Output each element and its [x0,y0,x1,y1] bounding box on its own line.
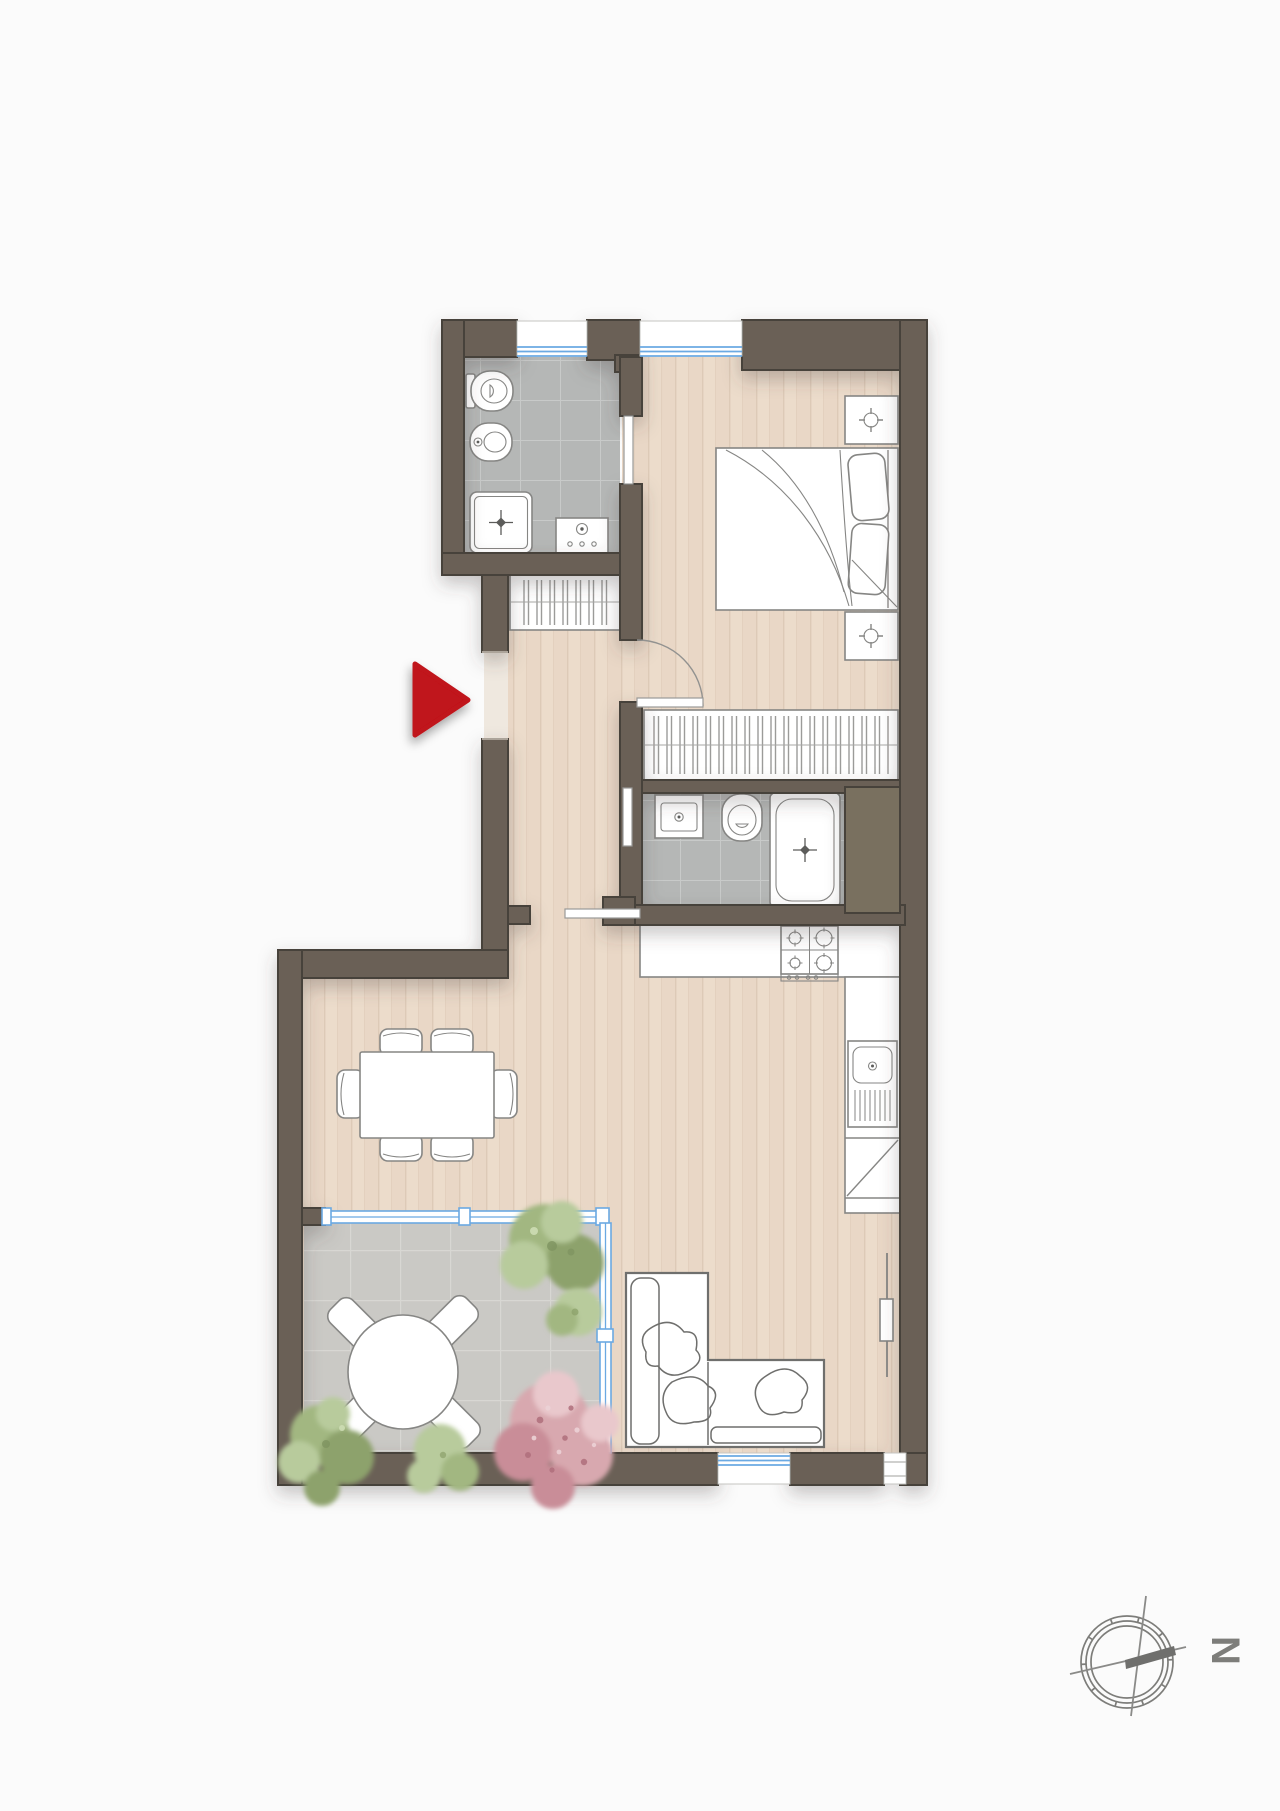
nightstand [845,612,898,660]
bedroom-wardrobe [644,710,898,780]
service-shaft [845,787,900,913]
nightstand [845,396,898,444]
kitchen-counter-top [640,923,900,977]
washbasin-icon [655,788,703,838]
bathtub-icon [770,793,840,907]
compass-north-label: N [1203,1636,1247,1665]
window [718,1453,790,1484]
entrance-threshold [484,652,508,739]
toilet-icon [466,371,513,411]
window [517,321,587,356]
bidet-icon [470,423,512,461]
dining-table [360,1052,494,1138]
window [640,321,742,356]
entrance-arrow-icon [415,664,468,735]
hallway-wardrobe [510,575,620,630]
round-table [348,1315,458,1429]
floor-plan-page: N [0,0,1280,1811]
living-pocket-door [565,909,640,918]
gas-hob-icon [781,926,838,981]
window [884,1453,906,1484]
washing-machine-icon [556,518,608,553]
bathroom-2-pocket-door [623,788,632,846]
double-bed [716,448,898,610]
compass-icon: N [1070,1596,1247,1716]
bathroom-1-pocket-door [624,416,633,484]
kitchen-sink-icon [848,1041,897,1127]
shower-tray-icon [470,492,532,553]
floor-plan-drawing: N [0,0,1280,1811]
